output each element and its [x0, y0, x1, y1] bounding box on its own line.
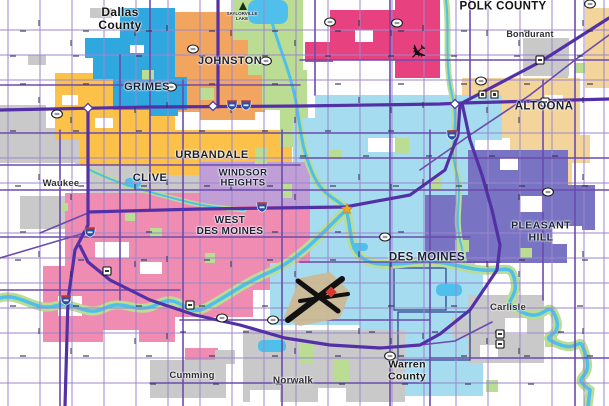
label-saylorville-lake: SAYLORVILLE LAKE [226, 11, 257, 21]
label-bondurant: Bondurant [506, 30, 553, 40]
label-carlisle: Carlisle [490, 303, 526, 313]
label-west-des-moines: WEST DES MOINES [197, 215, 264, 237]
metro-map: ✈ Dallas County POLK COUNTY Warren Count… [0, 0, 609, 406]
label-dallas-county: Dallas County [98, 6, 141, 32]
map-canvas: ✈ [0, 0, 609, 406]
label-polk-county: POLK COUNTY [460, 1, 547, 14]
label-grimes: GRIMES [124, 81, 170, 93]
label-warren-county: Warren County [388, 359, 426, 382]
label-pleasant-hill: PLEASANT HILL [507, 220, 575, 243]
label-clive: CLIVE [133, 172, 167, 184]
label-norwalk: Norwalk [273, 376, 313, 387]
label-urbandale: URBANDALE [175, 149, 248, 161]
label-johnston: JOHNSTON [198, 55, 262, 67]
label-cumming: Cumming [169, 371, 214, 381]
label-windsor-heights: WINDSOR HEIGHTS [219, 169, 268, 190]
label-waukee: Waukee [43, 179, 80, 189]
label-altoona: ALTOONA [515, 101, 574, 114]
label-des-moines: DES MOINES [389, 252, 465, 265]
